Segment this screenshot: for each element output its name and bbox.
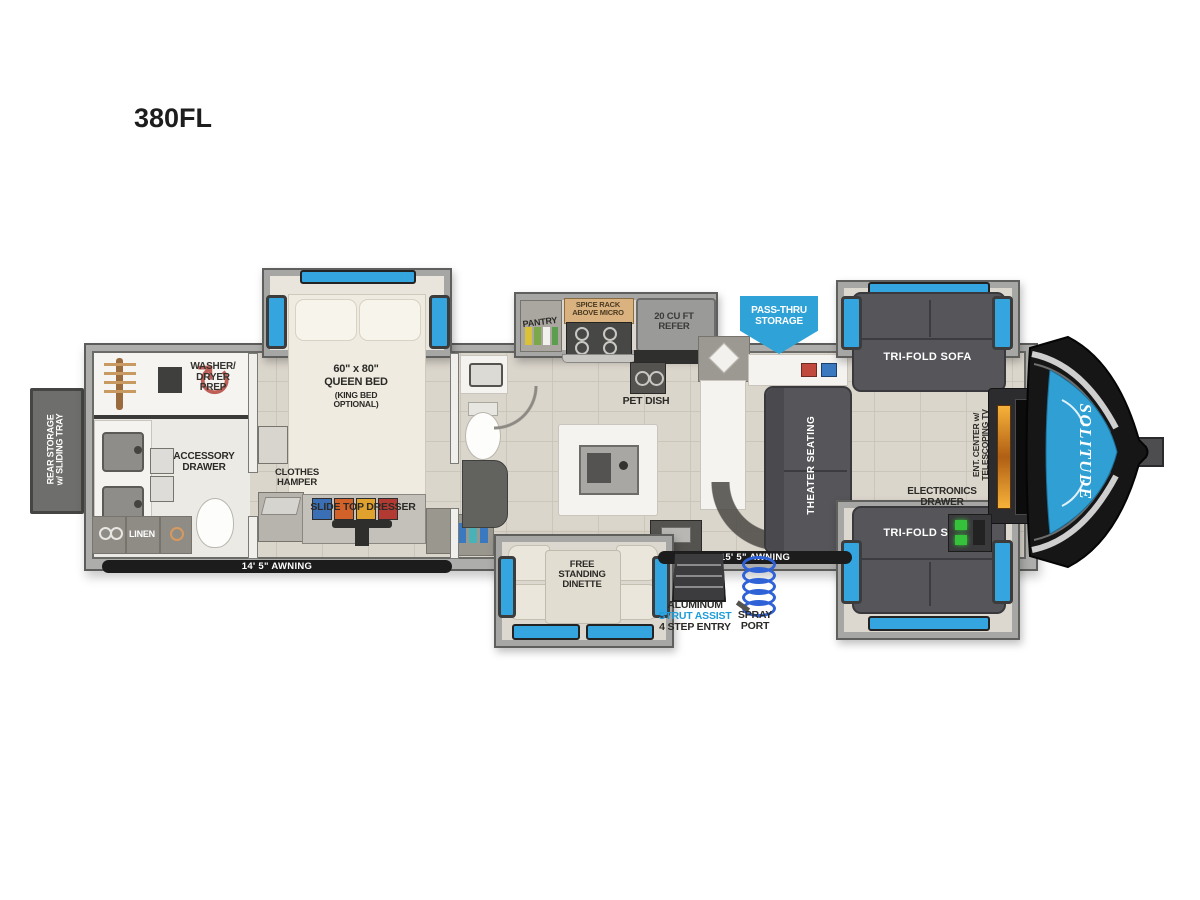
refer-label: 20 CU FT REFER [640, 312, 708, 332]
peninsula-top-cabinet [698, 336, 750, 382]
wardrobe-cabinet [426, 508, 452, 554]
awning-left: 14' 5" AWNING [102, 560, 452, 573]
midbath-wardrobe [462, 460, 508, 528]
wall [450, 508, 459, 559]
wall [450, 353, 459, 464]
accessory-drawer-unit [150, 476, 174, 502]
dinette-window [586, 624, 654, 640]
theater-seating-label: THEATER SEATING [807, 405, 818, 525]
bed-name-label: QUEEN BED [308, 377, 404, 389]
toilet [196, 498, 234, 548]
hanger [104, 372, 136, 375]
clothes-hamper-label: CLOTHES HAMPER [262, 468, 332, 488]
dresser-label: SLIDE TOP DRESSER [298, 502, 428, 513]
wall [248, 516, 258, 559]
front-cap: SOLITUDE [1020, 330, 1154, 574]
sofa-bottom-window-right [992, 540, 1013, 604]
entry-steps [672, 552, 726, 602]
dinette-label: FREE STANDING DINETTE [546, 560, 618, 590]
faucet [134, 446, 142, 454]
stool-base [355, 528, 369, 546]
page-title: 380FL [134, 104, 244, 132]
hanger [104, 381, 136, 384]
midbath-door-arc [494, 386, 540, 432]
floorplan-canvas: 380FL REAR STORAGE w/ SLIDING TRAY ↻ WAS… [0, 0, 1200, 900]
hanger [104, 390, 136, 393]
spray-port-coil-icon [742, 556, 772, 617]
dryer-cabinet [160, 516, 192, 554]
awning-left-label: 14' 5" AWNING [242, 562, 313, 572]
pass-thru-label: PASS-THRU STORAGE [742, 306, 816, 327]
prep-panel [158, 367, 182, 393]
pillow [359, 299, 421, 341]
nightstand [258, 426, 288, 464]
washer-dryer-label: WASHER/ DRYER PREP [180, 362, 246, 394]
pet-dish-label: PET DISH [614, 396, 678, 407]
tri-fold-sofa-top [852, 292, 1006, 392]
sofa-top-window-right [992, 296, 1013, 350]
hutch [748, 354, 848, 386]
brand-logo: SOLITUDE [1076, 403, 1095, 500]
rear-storage-box: REAR STORAGE w/ SLIDING TRAY [30, 388, 84, 514]
kitchen-island [558, 424, 658, 516]
bedroom-slide-window [300, 270, 416, 284]
stove [566, 322, 632, 356]
dinette-window [512, 624, 580, 640]
clothes-hamper [258, 492, 304, 542]
electronics-drawer [948, 514, 992, 552]
linen-label: LINEN [122, 530, 162, 539]
sofa-bottom-window-left [841, 540, 862, 604]
sofa-top-label: TRI-FOLD SOFA [860, 352, 995, 364]
faucet [134, 500, 142, 508]
washer-cabinet [92, 516, 126, 554]
accessory-drawer-label: ACCESSORY DRAWER [164, 452, 244, 473]
pillow [295, 299, 357, 341]
wall [248, 353, 258, 473]
hanger [104, 363, 136, 366]
rear-storage-label: REAR STORAGE w/ SLIDING TRAY [47, 390, 66, 508]
ent-center-label: ENT. CENTER w/ TELESCOPING TV [972, 389, 990, 501]
dinette-side-window-left [498, 556, 516, 618]
pet-dish [630, 362, 666, 394]
bedroom-window-left [266, 295, 287, 349]
sofa-top-window-left [841, 296, 862, 350]
sofa-bottom-slide-window [868, 616, 990, 631]
spray-port-label: SPRAY PORT [724, 610, 786, 632]
stool [332, 520, 392, 528]
spice-rack-label: SPICE RACK ABOVE MICRO [563, 301, 633, 317]
electronics-drawer-label: ELECTRONICS DRAWER [896, 487, 988, 508]
bedroom-window-right [429, 295, 450, 349]
bed-size-label: 60" x 80" [308, 364, 404, 376]
bed-option-label: (KING BED OPTIONAL) [308, 391, 404, 409]
stove-front [562, 354, 636, 363]
